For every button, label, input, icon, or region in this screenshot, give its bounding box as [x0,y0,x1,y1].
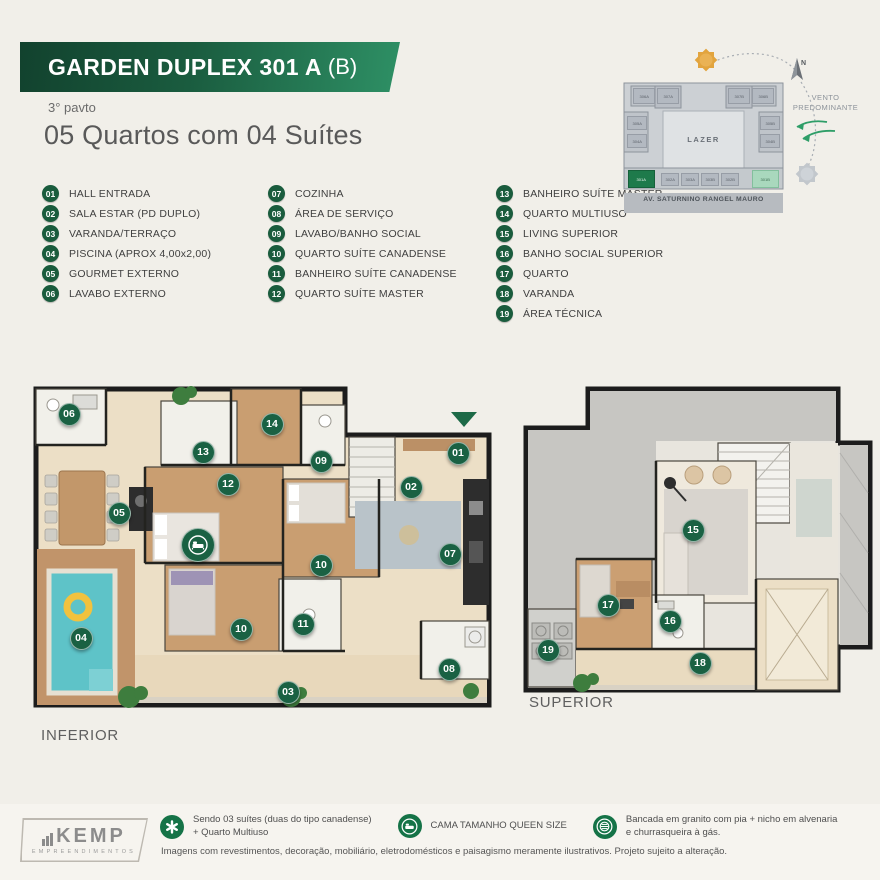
superior-plan-badges: 1517161918 [518,383,875,705]
legend-label: VARANDA/TERRAÇO [69,228,176,240]
legend-label: QUARTO [523,268,569,280]
legend-item: 06LAVABO EXTERNO [42,286,232,301]
site-plan-labels: LAZER AV. SATURNINO RANGEL MAURO N VENTO… [605,38,875,233]
legend-number-badge: 13 [496,185,513,202]
floor-plan-superior: 1517161918 [518,383,875,705]
site-unit-302A: 302A [661,173,679,186]
legend-label: LAVABO/BANHO SOCIAL [295,228,421,240]
asterisk-icon [160,815,184,839]
buildings-icon [42,826,54,846]
room-badge-13: 13 [192,441,215,464]
legend-item: 12QUARTO SUÍTE MASTER [268,286,460,301]
legend-item: 19ÁREA TÉCNICA [496,306,696,321]
room-badge-14: 14 [261,413,284,436]
wind-predominant-label: VENTO PREDOMINANTE [783,93,868,113]
footer-note: Bancada em granito com pia + nicho em al… [593,814,838,840]
site-unit-304A: 304A [627,134,647,148]
site-key-plan: LAZER AV. SATURNINO RANGEL MAURO N VENTO… [605,38,875,233]
legend-number-badge: 01 [42,185,59,202]
legend-label: BANHO SOCIAL SUPERIOR [523,248,663,260]
floor-note: 3° pavto [48,100,96,115]
legend-label: LIVING SUPERIOR [523,228,618,240]
grill-icon [593,815,617,839]
room-badge-02: 02 [400,476,423,499]
legend-number-badge: 03 [42,225,59,242]
legend-number-badge: 17 [496,265,513,282]
footer: KEMP EMPREENDIMENTOS Sendo 03 suítes (du… [0,804,880,880]
bed-icon [398,814,422,838]
legend-item: 04PISCINA (APROX 4,00x2,00) [42,246,232,261]
room-badge-18: 18 [689,652,712,675]
legend-number-badge: 06 [42,285,59,302]
legend-label: VARANDA [523,288,574,300]
room-badge-08: 08 [438,658,461,681]
legend-number-badge: 05 [42,265,59,282]
site-unit-307A: 307A [657,88,679,104]
room-badge-15: 15 [682,519,705,542]
legend-item: 08ÁREA DE SERVIÇO [268,206,460,221]
logo-subtitle: EMPREENDIMENTOS [32,849,136,855]
legend-number-badge: 10 [268,245,285,262]
legend-number-badge: 15 [496,225,513,242]
footer-note: CAMA TAMANHO QUEEN SIZE [398,814,567,838]
footer-notes: Sendo 03 suítes (duas do tipo canadense)… [160,814,863,840]
legend-label: SALA ESTAR (PD DUPLO) [69,208,200,220]
inferior-plan-badges: 061413010912020507101110040803 [33,383,493,711]
legend-label: GOURMET EXTERNO [69,268,179,280]
legend-item: 09LAVABO/BANHO SOCIAL [268,226,460,241]
legend-item: 02SALA ESTAR (PD DUPLO) [42,206,232,221]
footer-note: Sendo 03 suítes (duas do tipo canadense)… [160,814,372,840]
legend-label: BANHEIRO SUÍTE CANADENSE [295,268,457,280]
legend-number-badge: 07 [268,185,285,202]
site-unit-305A: 305A [627,116,647,130]
room-badge-06: 06 [58,403,81,426]
logo-name: KEMP [56,825,126,847]
legend-column: 07COZINHA08ÁREA DE SERVIÇO09LAVABO/BANHO… [268,186,460,321]
footer-note-text: Bancada em granito com pia + nicho em al… [626,814,838,840]
room-badge-17: 17 [597,594,620,617]
room-badge-01: 01 [447,442,470,465]
room-badge-12: 12 [217,473,240,496]
site-unit-304B: 304B [760,134,780,148]
room-badge-16: 16 [659,610,682,633]
queen-bed-badge [181,528,215,562]
site-unit-303A: 303A [681,173,699,186]
site-unit-305B: 305B [760,116,780,130]
legend-number-badge: 19 [496,305,513,322]
legend-label: HALL ENTRADA [69,188,150,200]
legend: 01HALL ENTRADA02SALA ESTAR (PD DUPLO)03V… [42,186,696,321]
legend-item: 16BANHO SOCIAL SUPERIOR [496,246,696,261]
site-unit-301B: 301B [752,170,779,188]
legend-item: 01HALL ENTRADA [42,186,232,201]
room-badge-10: 10 [230,618,253,641]
page-title-suffix: (B) [328,54,357,80]
legend-item: 11BANHEIRO SUÍTE CANADENSE [268,266,460,281]
room-badge-11: 11 [292,613,315,636]
room-badge-04: 04 [70,627,93,650]
legend-number-badge: 02 [42,205,59,222]
legend-number-badge: 04 [42,245,59,262]
title-banner: GARDEN DUPLEX 301 A (B) [20,42,400,92]
site-unit-303B: 303B [701,173,719,186]
legend-label: QUARTO SUÍTE MASTER [295,288,424,300]
legend-label: QUARTO SUÍTE CANADENSE [295,248,446,260]
north-label: N [801,60,806,67]
site-unit-306B: 306B [752,88,774,104]
room-badge-07: 07 [439,543,462,566]
legend-number-badge: 12 [268,285,285,302]
legend-label: LAVABO EXTERNO [69,288,166,300]
legend-label: COZINHA [295,188,344,200]
inferior-plan-label: INFERIOR [41,727,119,744]
street-label: AV. SATURNINO RANGEL MAURO [624,196,783,203]
legend-item: 05GOURMET EXTERNO [42,266,232,281]
room-badge-09: 09 [310,450,333,473]
page-title: GARDEN DUPLEX 301 A [48,54,322,81]
legend-item: 07COZINHA [268,186,460,201]
superior-plan-label: SUPERIOR [529,694,614,711]
disclaimer: Imagens com revestimentos, decoração, mo… [161,846,727,857]
legend-label: ÁREA TÉCNICA [523,308,602,320]
kemp-logo: KEMP EMPREENDIMENTOS [20,818,148,862]
legend-number-badge: 16 [496,245,513,262]
legend-number-badge: 18 [496,285,513,302]
site-unit-302B: 302B [721,173,739,186]
legend-number-badge: 09 [268,225,285,242]
footer-note-text: Sendo 03 suítes (duas do tipo canadense)… [193,814,372,840]
lazer-label: LAZER [665,135,742,144]
legend-number-badge: 08 [268,205,285,222]
site-unit-301A: 301A [628,170,655,188]
legend-item: 10QUARTO SUÍTE CANADENSE [268,246,460,261]
room-badge-19: 19 [537,639,560,662]
footer-note-text: CAMA TAMANHO QUEEN SIZE [431,820,567,833]
site-unit-307B: 307B [728,88,750,104]
room-badge-05: 05 [108,502,131,525]
legend-number-badge: 11 [268,265,285,282]
legend-item: 17QUARTO [496,266,696,281]
legend-number-badge: 14 [496,205,513,222]
room-badge-10: 10 [310,554,333,577]
legend-item: 18VARANDA [496,286,696,301]
floor-plan-inferior: 061413010912020507101110040803 [33,383,493,711]
subtitle: 05 Quartos com 04 Suítes [44,120,362,151]
room-badge-03: 03 [277,681,300,704]
legend-label: ÁREA DE SERVIÇO [295,208,394,220]
legend-column: 01HALL ENTRADA02SALA ESTAR (PD DUPLO)03V… [42,186,232,321]
flyer-page: GARDEN DUPLEX 301 A (B) 3° pavto 05 Quar… [0,0,880,880]
legend-label: PISCINA (APROX 4,00x2,00) [69,248,211,260]
legend-item: 03VARANDA/TERRAÇO [42,226,232,241]
site-unit-306A: 306A [633,88,655,104]
